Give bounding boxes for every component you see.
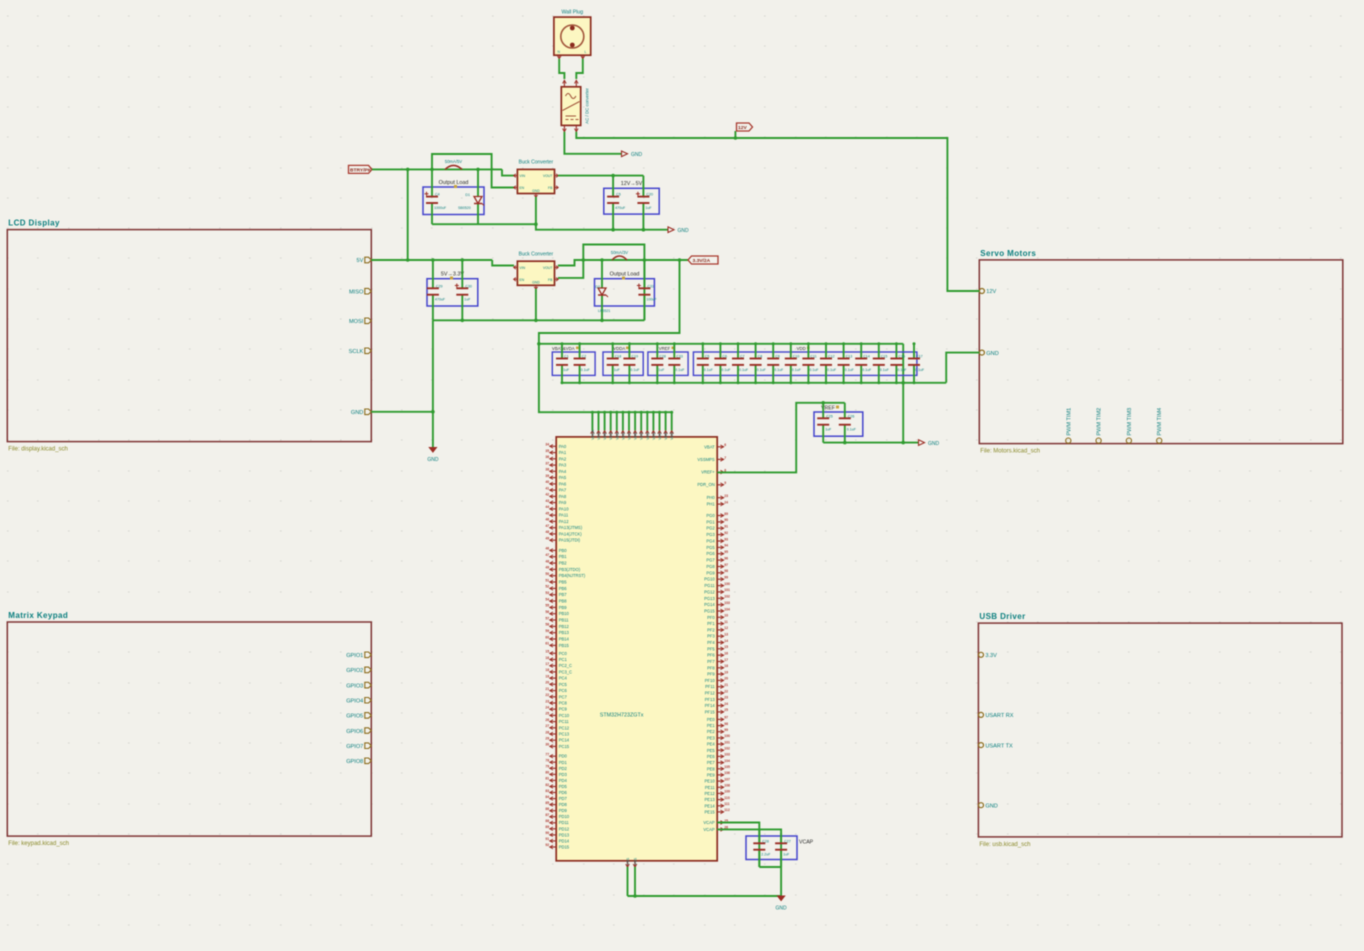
- svg-text:C30: C30: [465, 284, 472, 288]
- svg-text:C12: C12: [828, 355, 835, 359]
- svg-text:USART TX: USART TX: [985, 743, 1013, 749]
- svg-text:VSS: VSS: [626, 857, 630, 865]
- svg-text:0.1uF: 0.1uF: [739, 368, 749, 372]
- svg-text:File: display.kicad_sch: File: display.kicad_sch: [8, 447, 68, 453]
- svg-text:50mA/3V: 50mA/3V: [611, 250, 628, 255]
- svg-text:PC0: PC0: [559, 651, 568, 656]
- svg-text:EN: EN: [519, 186, 524, 190]
- svg-text:PD14: PD14: [559, 838, 570, 843]
- svg-text:0.1uF: 0.1uF: [721, 368, 731, 372]
- svg-text:PB3(JTDO): PB3(JTDO): [559, 567, 581, 572]
- svg-text:GND: GND: [427, 457, 439, 463]
- svg-text:107: 107: [724, 777, 730, 781]
- svg-text:FB: FB: [548, 186, 553, 190]
- svg-text:55: 55: [545, 604, 549, 608]
- svg-text:PWM TIM2: PWM TIM2: [1097, 408, 1103, 436]
- svg-text:18: 18: [724, 664, 728, 668]
- svg-text:48: 48: [545, 559, 549, 563]
- svg-text:Output Load: Output Load: [439, 180, 469, 186]
- svg-text:PF4: PF4: [707, 640, 715, 645]
- svg-text:GND: GND: [985, 803, 997, 809]
- svg-text:PG6: PG6: [706, 551, 715, 556]
- svg-text:14: 14: [724, 639, 728, 643]
- svg-text:41: 41: [545, 486, 549, 490]
- svg-text:PE10: PE10: [705, 779, 716, 784]
- svg-text:PB12: PB12: [559, 624, 570, 629]
- svg-text:PE6: PE6: [707, 754, 716, 759]
- svg-text:PE11: PE11: [705, 785, 716, 790]
- svg-text:53: 53: [545, 591, 549, 595]
- svg-text:VBAT&VDA: VBAT&VDA: [552, 346, 575, 351]
- svg-text:104: 104: [724, 607, 730, 611]
- svg-text:PF13: PF13: [705, 697, 716, 702]
- svg-text:VDD: VDD: [615, 432, 619, 440]
- svg-text:13: 13: [724, 633, 728, 637]
- svg-text:STM32H723ZGTx: STM32H723ZGTx: [600, 713, 644, 719]
- svg-text:PA15(JTDI): PA15(JTDI): [559, 538, 581, 543]
- svg-text:LP5521: LP5521: [598, 309, 610, 313]
- svg-text:77: 77: [545, 753, 549, 757]
- svg-text:PB15: PB15: [559, 643, 570, 648]
- svg-text:2.2uF: 2.2uF: [761, 853, 771, 857]
- svg-text:7: 7: [724, 456, 726, 460]
- svg-text:PG12: PG12: [704, 589, 715, 594]
- svg-text:56: 56: [545, 610, 549, 614]
- svg-text:C27: C27: [784, 839, 791, 843]
- svg-text:15: 15: [724, 645, 728, 649]
- svg-text:Matrix Keypad: Matrix Keypad: [8, 611, 68, 620]
- svg-text:94: 94: [724, 544, 728, 548]
- svg-text:Buck Converter: Buck Converter: [519, 160, 554, 166]
- svg-text:PC4: PC4: [559, 676, 568, 681]
- svg-text:PE2: PE2: [707, 729, 716, 734]
- svg-text:GPIO3: GPIO3: [346, 683, 363, 689]
- svg-text:PB0: PB0: [559, 548, 568, 553]
- svg-text:PD11: PD11: [559, 820, 570, 825]
- svg-text:VSSMPS: VSSMPS: [697, 457, 714, 462]
- svg-text:60: 60: [545, 635, 549, 639]
- svg-text:58: 58: [545, 623, 549, 627]
- svg-text:PF14: PF14: [705, 703, 716, 708]
- svg-text:103: 103: [724, 601, 730, 605]
- svg-text:C19: C19: [631, 355, 638, 359]
- svg-text:3.3V/2A: 3.3V/2A: [693, 258, 711, 264]
- svg-text:57: 57: [545, 616, 549, 620]
- svg-text:34: 34: [545, 443, 549, 447]
- svg-text:VDD: VDD: [640, 432, 644, 440]
- svg-text:VDD: VDD: [609, 432, 613, 440]
- svg-text:87: 87: [545, 813, 549, 817]
- svg-text:22: 22: [724, 689, 728, 693]
- svg-text:PC13: PC13: [559, 732, 570, 737]
- svg-text:PD4: PD4: [559, 778, 568, 783]
- svg-text:PC2_C: PC2_C: [559, 663, 572, 668]
- svg-text:PF3: PF3: [707, 634, 715, 639]
- svg-text:C26: C26: [848, 414, 855, 418]
- svg-text:110: 110: [724, 796, 730, 800]
- svg-text:VDD: VDD: [797, 346, 806, 351]
- svg-text:PB7: PB7: [559, 592, 568, 597]
- svg-text:VCAP: VCAP: [799, 840, 814, 846]
- svg-text:PE7: PE7: [707, 760, 716, 765]
- svg-text:54: 54: [545, 597, 549, 601]
- svg-text:PA12: PA12: [559, 519, 570, 524]
- svg-text:PB4(NJTRST): PB4(NJTRST): [559, 573, 586, 578]
- svg-text:106: 106: [724, 771, 730, 775]
- svg-text:VREF: VREF: [659, 346, 671, 351]
- svg-text:5V: 5V: [356, 258, 363, 264]
- svg-text:45: 45: [545, 512, 549, 516]
- svg-text:108: 108: [724, 784, 730, 788]
- svg-text:VIN: VIN: [519, 266, 525, 270]
- svg-text:PD0: PD0: [559, 754, 568, 759]
- svg-text:PH1: PH1: [707, 502, 716, 507]
- svg-text:36: 36: [545, 455, 549, 459]
- svg-text:49: 49: [545, 566, 549, 570]
- svg-text:PE8: PE8: [707, 766, 716, 771]
- svg-text:44: 44: [545, 505, 549, 509]
- svg-text:PF12: PF12: [705, 691, 716, 696]
- svg-text:82: 82: [545, 783, 549, 787]
- svg-text:10: 10: [724, 614, 728, 618]
- svg-text:17: 17: [545, 662, 549, 666]
- svg-text:90: 90: [724, 518, 728, 522]
- svg-text:VCAP: VCAP: [703, 820, 715, 825]
- svg-text:PA5: PA5: [559, 475, 567, 480]
- svg-text:C16: C16: [898, 355, 905, 359]
- svg-text:PC15: PC15: [559, 744, 570, 749]
- svg-text:100: 100: [724, 734, 730, 738]
- svg-text:26: 26: [545, 718, 549, 722]
- svg-text:39: 39: [545, 474, 549, 478]
- svg-text:PD1: PD1: [559, 760, 568, 765]
- svg-text:BTRY/PK: BTRY/PK: [350, 168, 372, 174]
- svg-text:PE12: PE12: [705, 791, 716, 796]
- svg-text:PA4: PA4: [559, 469, 567, 474]
- svg-text:102: 102: [724, 595, 730, 599]
- svg-text:0.1uF: 0.1uF: [915, 368, 925, 372]
- svg-text:PD13: PD13: [559, 832, 570, 837]
- svg-text:100: 100: [724, 582, 730, 586]
- svg-text:46: 46: [545, 518, 549, 522]
- svg-text:PB1: PB1: [559, 554, 568, 559]
- svg-text:0.1uF: 0.1uF: [581, 368, 591, 372]
- svg-text:PB5: PB5: [559, 580, 568, 585]
- svg-text:80: 80: [545, 771, 549, 775]
- svg-text:PG15: PG15: [704, 609, 715, 614]
- svg-text:PC7: PC7: [559, 694, 568, 699]
- svg-text:0.1uF: 0.1uF: [862, 368, 872, 372]
- svg-text:97: 97: [724, 563, 728, 567]
- svg-text:VOUT: VOUT: [543, 266, 552, 270]
- svg-text:0.1uF: 0.1uF: [847, 428, 857, 432]
- svg-text:C13: C13: [846, 355, 853, 359]
- svg-text:PD9: PD9: [559, 808, 568, 813]
- svg-text:47: 47: [545, 524, 549, 528]
- svg-text:PF8: PF8: [707, 665, 715, 670]
- svg-text:25: 25: [724, 708, 728, 712]
- svg-text:EN: EN: [519, 278, 524, 282]
- svg-text:89: 89: [545, 825, 549, 829]
- svg-text:101: 101: [724, 588, 730, 592]
- svg-text:GPIO8: GPIO8: [346, 759, 363, 765]
- svg-text:42: 42: [545, 493, 549, 497]
- svg-text:C14: C14: [863, 355, 870, 359]
- svg-text:C10: C10: [793, 355, 800, 359]
- svg-text:PF15: PF15: [705, 709, 716, 714]
- svg-text:1uF: 1uF: [645, 206, 652, 210]
- svg-text:19: 19: [724, 670, 728, 674]
- svg-text:1uF: 1uF: [464, 298, 471, 302]
- svg-text:VDD: VDD: [646, 432, 650, 440]
- svg-text:19: 19: [545, 674, 549, 678]
- svg-text:VIN: VIN: [519, 174, 525, 178]
- svg-text:0.1uF: 0.1uF: [675, 368, 685, 372]
- svg-text:0.1uF: 0.1uF: [757, 368, 767, 372]
- svg-text:PC5: PC5: [559, 682, 568, 687]
- svg-text:USART RX: USART RX: [985, 713, 1013, 719]
- svg-text:SCLK: SCLK: [349, 349, 364, 355]
- svg-text:23: 23: [724, 494, 728, 498]
- svg-text:D1: D1: [465, 193, 470, 197]
- svg-text:78: 78: [545, 759, 549, 763]
- svg-text:0.1uF: 0.1uF: [704, 368, 714, 372]
- svg-text:50: 50: [545, 572, 549, 576]
- svg-text:PA11: PA11: [559, 513, 569, 518]
- svg-text:C8: C8: [758, 355, 763, 359]
- svg-text:PG11: PG11: [704, 583, 715, 588]
- svg-text:PG5: PG5: [706, 545, 715, 550]
- svg-text:23: 23: [724, 696, 728, 700]
- svg-text:GND: GND: [776, 906, 788, 912]
- svg-text:28: 28: [545, 730, 549, 734]
- svg-text:C31: C31: [647, 284, 654, 288]
- svg-text:PD8: PD8: [559, 802, 568, 807]
- svg-text:40: 40: [545, 480, 549, 484]
- svg-text:PA7: PA7: [559, 488, 567, 493]
- svg-text:PG7: PG7: [706, 558, 715, 563]
- svg-text:FB: FB: [548, 278, 553, 282]
- svg-text:12V: 12V: [738, 125, 747, 131]
- svg-text:103: 103: [724, 753, 730, 757]
- svg-text:89: 89: [724, 512, 728, 516]
- svg-text:38: 38: [545, 468, 549, 472]
- svg-text:81: 81: [545, 777, 549, 781]
- svg-text:Servo Motors: Servo Motors: [980, 249, 1036, 258]
- svg-text:PDR_ON: PDR_ON: [697, 482, 714, 487]
- svg-text:PF10: PF10: [705, 678, 716, 683]
- svg-text:46: 46: [545, 547, 549, 551]
- svg-text:25: 25: [545, 712, 549, 716]
- svg-text:GPIO5: GPIO5: [346, 714, 363, 720]
- svg-text:MISO: MISO: [349, 289, 364, 295]
- svg-text:PG3: PG3: [706, 532, 715, 537]
- svg-text:PD6: PD6: [559, 790, 568, 795]
- svg-text:51: 51: [545, 578, 549, 582]
- svg-text:PE3: PE3: [707, 735, 716, 740]
- svg-text:C20: C20: [646, 193, 653, 197]
- svg-text:VDD: VDD: [621, 432, 625, 440]
- svg-text:GPIO1: GPIO1: [346, 653, 363, 659]
- svg-text:PC10: PC10: [559, 713, 570, 718]
- svg-text:104: 104: [724, 759, 730, 763]
- svg-text:0.1uF: 0.1uF: [827, 368, 837, 372]
- svg-text:VOUT: VOUT: [543, 174, 552, 178]
- svg-text:109: 109: [724, 790, 730, 794]
- svg-text:102: 102: [724, 747, 730, 751]
- svg-text:C11: C11: [810, 355, 816, 359]
- svg-text:PC12: PC12: [559, 725, 570, 730]
- svg-text:11: 11: [724, 620, 728, 624]
- svg-text:30: 30: [545, 743, 549, 747]
- svg-text:3.3V: 3.3V: [985, 653, 997, 659]
- svg-text:61: 61: [545, 642, 549, 646]
- svg-text:PA14(JTCK): PA14(JTCK): [559, 531, 583, 536]
- svg-text:PG1: PG1: [706, 519, 715, 524]
- svg-text:AC / DC converter: AC / DC converter: [585, 88, 590, 124]
- svg-text:C5: C5: [705, 355, 710, 359]
- svg-text:1uF: 1uF: [783, 853, 790, 857]
- svg-text:GND: GND: [928, 441, 940, 447]
- svg-text:92: 92: [724, 531, 728, 535]
- svg-text:VDDA: VDDA: [591, 429, 595, 440]
- svg-text:PD15: PD15: [559, 845, 570, 850]
- svg-text:83: 83: [545, 789, 549, 793]
- svg-text:PWM TIM1: PWM TIM1: [1066, 408, 1072, 436]
- svg-text:C7: C7: [740, 355, 745, 359]
- svg-text:93: 93: [724, 537, 728, 541]
- svg-text:PB10: PB10: [559, 611, 570, 616]
- svg-text:C4: C4: [435, 193, 440, 197]
- svg-text:PA3: PA3: [559, 463, 567, 468]
- svg-text:L: L: [585, 50, 587, 54]
- svg-text:PD10: PD10: [559, 814, 570, 819]
- svg-text:C6: C6: [722, 355, 727, 359]
- svg-text:VREF+: VREF+: [701, 470, 715, 475]
- svg-text:GND: GND: [351, 410, 363, 416]
- svg-text:92: 92: [545, 843, 549, 847]
- svg-text:GPIO4: GPIO4: [346, 699, 363, 705]
- svg-text:C2: C2: [582, 355, 587, 359]
- svg-text:85: 85: [545, 801, 549, 805]
- svg-text:17: 17: [724, 658, 728, 662]
- svg-text:29: 29: [545, 737, 549, 741]
- svg-text:C17: C17: [916, 355, 923, 359]
- svg-text:0.1uF: 0.1uF: [809, 368, 819, 372]
- svg-text:GND: GND: [631, 152, 643, 158]
- svg-text:PB6: PB6: [559, 586, 568, 591]
- svg-text:GPIO2: GPIO2: [346, 668, 363, 674]
- svg-text:Wall Plug: Wall Plug: [561, 10, 583, 16]
- svg-text:47: 47: [545, 553, 549, 557]
- svg-text:27: 27: [545, 724, 549, 728]
- svg-text:1uF: 1uF: [563, 368, 570, 372]
- svg-text:90: 90: [545, 831, 549, 835]
- svg-text:PWM TIM3: PWM TIM3: [1127, 408, 1133, 436]
- svg-text:88: 88: [545, 819, 549, 823]
- svg-text:24: 24: [724, 500, 728, 504]
- svg-text:PG10: PG10: [704, 577, 715, 582]
- svg-text:21: 21: [724, 683, 728, 687]
- svg-text:PE0: PE0: [707, 717, 716, 722]
- svg-text:PE1: PE1: [707, 723, 716, 728]
- svg-text:PB13: PB13: [559, 630, 570, 635]
- svg-text:PE9: PE9: [707, 772, 716, 777]
- svg-text:50mA/5V: 50mA/5V: [445, 159, 462, 164]
- svg-text:84: 84: [545, 795, 549, 799]
- svg-text:MOSI: MOSI: [349, 319, 364, 325]
- svg-text:20: 20: [724, 677, 728, 681]
- svg-text:PD7: PD7: [559, 796, 568, 801]
- svg-text:PE4: PE4: [707, 742, 716, 747]
- svg-text:15: 15: [545, 650, 549, 654]
- svg-text:PG9: PG9: [706, 570, 715, 575]
- svg-text:PF6: PF6: [707, 653, 715, 658]
- svg-text:0.1uF: 0.1uF: [774, 368, 784, 372]
- svg-text:VSS: VSS: [634, 857, 638, 865]
- svg-text:16: 16: [545, 656, 549, 660]
- svg-text:PD5: PD5: [559, 784, 568, 789]
- svg-text:PD3: PD3: [559, 772, 568, 777]
- svg-text:97: 97: [724, 716, 728, 720]
- svg-text:PF7: PF7: [707, 659, 715, 664]
- svg-text:9: 9: [724, 481, 726, 485]
- svg-text:23: 23: [545, 699, 549, 703]
- svg-text:470uF: 470uF: [615, 206, 626, 210]
- svg-text:GND: GND: [678, 228, 690, 234]
- svg-text:59: 59: [545, 629, 549, 633]
- svg-text:PG2: PG2: [706, 526, 715, 531]
- svg-text:98: 98: [724, 569, 728, 573]
- svg-text:VDD: VDD: [664, 432, 668, 440]
- svg-text:D2: D2: [595, 285, 600, 289]
- svg-text:VDD: VDD: [628, 432, 632, 440]
- svg-text:18: 18: [545, 668, 549, 672]
- svg-text:12V: 12V: [986, 289, 996, 295]
- svg-text:C25: C25: [826, 414, 833, 418]
- svg-text:C1: C1: [564, 355, 569, 359]
- svg-text:48: 48: [545, 530, 549, 534]
- svg-text:79: 79: [545, 765, 549, 769]
- svg-text:PF2: PF2: [707, 627, 715, 632]
- svg-text:12V→5V: 12V→5V: [621, 181, 643, 187]
- svg-text:112: 112: [724, 808, 730, 812]
- svg-text:105: 105: [724, 765, 730, 769]
- svg-text:PD12: PD12: [559, 826, 570, 831]
- svg-text:PB14: PB14: [559, 637, 570, 642]
- svg-text:C15: C15: [881, 355, 888, 359]
- svg-text:PC3_C: PC3_C: [559, 669, 572, 674]
- svg-text:PG14: PG14: [704, 602, 715, 607]
- svg-text:0.1uF: 0.1uF: [630, 368, 640, 372]
- svg-text:PF1: PF1: [707, 621, 715, 626]
- svg-text:99: 99: [724, 576, 728, 580]
- svg-text:PG0: PG0: [706, 513, 715, 518]
- svg-text:C5: C5: [616, 193, 621, 197]
- svg-text:91: 91: [545, 837, 549, 841]
- svg-text:91: 91: [724, 525, 728, 529]
- svg-text:PB11: PB11: [559, 618, 570, 623]
- svg-text:USB Driver: USB Driver: [979, 612, 1025, 621]
- svg-text:GPIO7: GPIO7: [346, 744, 363, 750]
- svg-text:16: 16: [724, 652, 728, 656]
- svg-text:1000uF: 1000uF: [434, 206, 447, 210]
- svg-text:C28: C28: [659, 355, 666, 359]
- svg-text:22: 22: [545, 693, 549, 697]
- svg-text:PC14: PC14: [559, 738, 570, 743]
- svg-text:PA6: PA6: [559, 481, 567, 486]
- svg-text:1uF: 1uF: [614, 368, 621, 372]
